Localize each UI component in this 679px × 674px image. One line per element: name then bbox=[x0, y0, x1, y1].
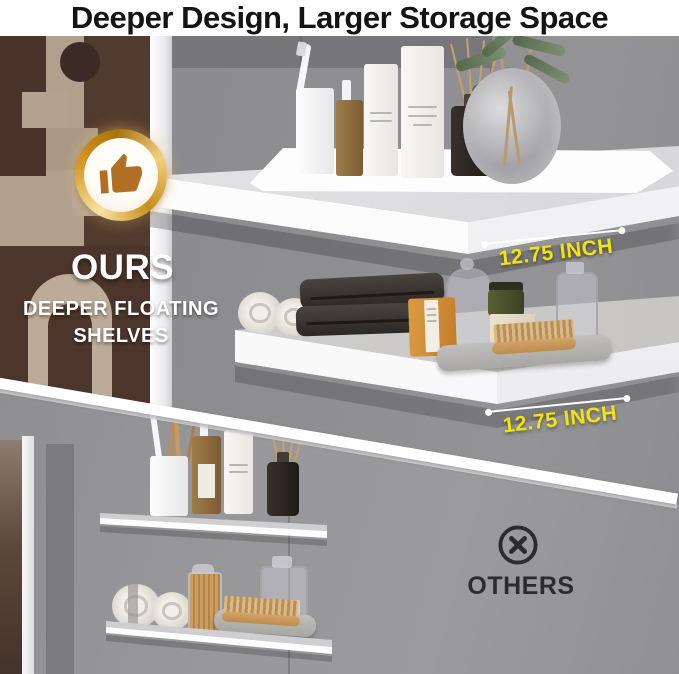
frame-edge bbox=[22, 436, 34, 674]
abstract-art-frame-bottom bbox=[0, 440, 22, 674]
others-label: OTHERS bbox=[452, 572, 590, 601]
jar-lid bbox=[192, 564, 214, 574]
ours-label: OURS bbox=[30, 248, 215, 288]
ours-subtitle: DEEPER FLOATING SHELVES bbox=[12, 296, 230, 350]
toothbrush-cup bbox=[296, 88, 334, 174]
toothbrush-cup bbox=[150, 456, 188, 516]
tall-white-bottle bbox=[401, 46, 444, 178]
art-shape bbox=[60, 42, 100, 82]
glass-bottle-neck bbox=[566, 262, 584, 274]
product-comparison-image: OURS DEEPER FLOATING SHELVES 12.75 INCH … bbox=[0, 0, 679, 674]
reed-diffuser-bottle bbox=[267, 462, 299, 516]
wall-dark-strip bbox=[46, 444, 74, 674]
art-shape bbox=[22, 92, 68, 128]
plant-leaf bbox=[511, 34, 566, 58]
headline-bar: Deeper Design, Larger Storage Space bbox=[0, 0, 679, 36]
approval-badge-inner bbox=[84, 138, 158, 212]
towel-band bbox=[128, 584, 138, 628]
amber-bottle bbox=[192, 436, 221, 514]
white-bottle bbox=[364, 64, 398, 176]
green-glass-jar bbox=[488, 290, 524, 316]
headline: Deeper Design, Larger Storage Space bbox=[71, 0, 608, 36]
amber-bottle bbox=[336, 100, 363, 176]
jar-knob bbox=[460, 258, 474, 270]
white-bottle bbox=[224, 430, 253, 514]
glass-vase bbox=[463, 68, 561, 184]
abstract-art-frame bbox=[0, 36, 150, 412]
approval-badge bbox=[75, 129, 167, 221]
jar-knob bbox=[272, 556, 292, 568]
thumbs-up-icon bbox=[96, 150, 145, 199]
circled-x-icon bbox=[496, 523, 540, 567]
circled-x-glyph bbox=[496, 523, 540, 567]
rolled-towel bbox=[152, 592, 192, 630]
